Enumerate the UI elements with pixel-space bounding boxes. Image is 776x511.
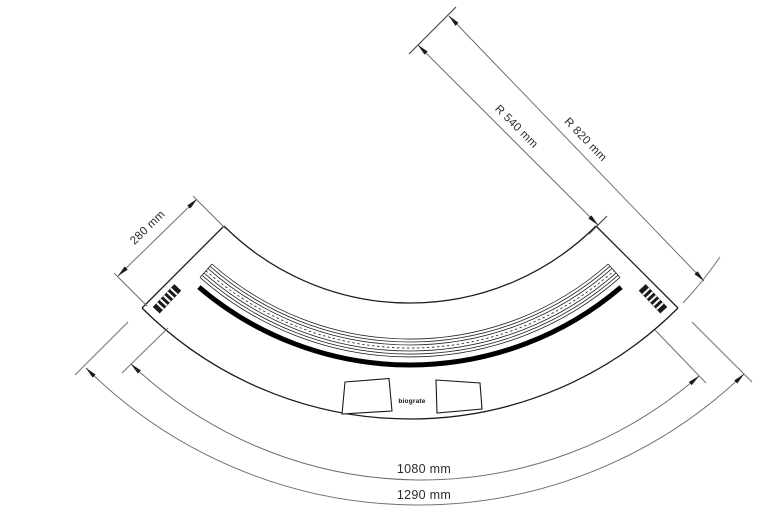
dim-arc-inner-label: 1080 mm xyxy=(397,462,451,476)
dim-depth-label: 280 mm xyxy=(128,208,167,247)
drawing-svg: biograte R 540 mm R 820 mm 280 mm 1080 m xyxy=(0,0,776,511)
dim-center-tick xyxy=(409,7,456,54)
front-arc-extension xyxy=(683,257,720,303)
burner-band xyxy=(200,264,620,357)
left-cover-plate xyxy=(342,379,392,415)
left-vent xyxy=(153,284,181,313)
dim-radius-inner: R 540 mm xyxy=(409,7,607,234)
fireplace-body-outline xyxy=(142,226,678,419)
brand-logo-text: biograte xyxy=(398,398,425,405)
right-cover-plate xyxy=(436,380,482,413)
burner-slot-arc xyxy=(199,287,621,365)
right-vent xyxy=(639,284,667,313)
technical-drawing-canvas: biograte R 540 mm R 820 mm 280 mm 1080 m xyxy=(0,0,776,511)
dim-arc-outer-label: 1290 mm xyxy=(397,488,451,502)
back-edge-arc xyxy=(224,226,596,303)
dim-radius-outer: R 820 mm xyxy=(449,16,720,303)
dim-arc-outer: 1290 mm xyxy=(75,322,752,505)
